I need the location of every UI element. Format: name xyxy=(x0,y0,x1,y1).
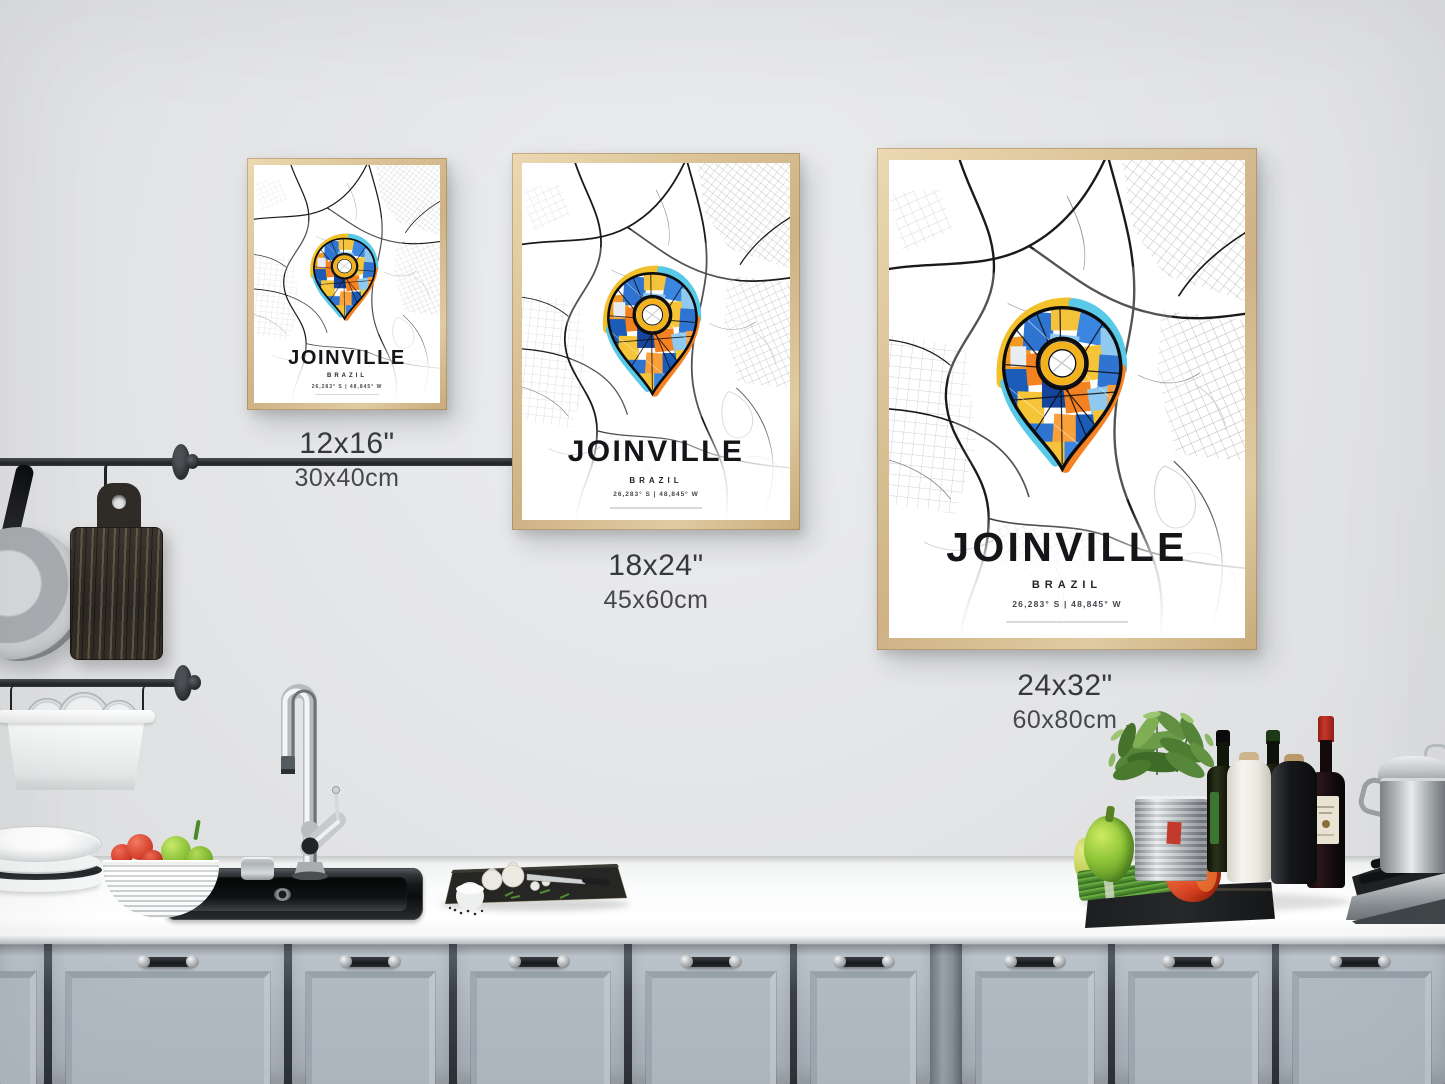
poster-frame-24x32: JOINVILLE BRAZIL 26,283° S | 48,845° W xyxy=(877,148,1257,650)
cabinet-handle xyxy=(1166,957,1220,967)
poster-country: BRAZIL xyxy=(254,373,440,379)
poster-coordinates: 26,283° S | 48,845° W xyxy=(889,599,1245,609)
cabinet-door xyxy=(457,944,624,1084)
cabinet-door xyxy=(52,944,284,1084)
kitchen-mockup-scene: JOINVILLE BRAZIL 26,283° S | 48,845° W J… xyxy=(0,0,1445,1084)
cabinet-handle xyxy=(1333,957,1387,967)
wall-rail-lower xyxy=(0,679,198,687)
grinder-body xyxy=(1227,760,1271,882)
poster-title: JOINVILLE xyxy=(522,437,790,467)
size-cm: 30x40cm xyxy=(247,464,447,493)
rail-bracket xyxy=(174,665,192,701)
rail-bracket xyxy=(172,444,190,480)
green-bell-pepper xyxy=(1084,816,1134,882)
poster-print: JOINVILLE BRAZIL 26,283° S | 48,845° W xyxy=(522,163,790,520)
utensil-bucket-rim xyxy=(0,710,155,723)
size-inches: 24x32" xyxy=(965,669,1165,703)
cabinet-handle xyxy=(1008,957,1062,967)
cabinet-door xyxy=(1279,944,1445,1084)
poster-print: JOINVILLE BRAZIL 26,283° S | 48,845° W xyxy=(889,160,1245,638)
counter-front-edge xyxy=(0,934,1445,944)
white-ribbed-bowl xyxy=(103,860,219,918)
poster-title: JOINVILLE xyxy=(889,527,1245,568)
cabinet-door xyxy=(632,944,790,1084)
poster-frame-12x16: JOINVILLE BRAZIL 26,283° S | 48,845° W xyxy=(247,158,447,410)
cabinet-door xyxy=(797,944,930,1084)
utensil-bucket xyxy=(0,712,152,790)
cabinet-door xyxy=(1115,944,1272,1084)
cabinet-handle xyxy=(684,957,738,967)
poster-coordinates: 26,283° S | 48,845° W xyxy=(254,384,440,390)
cabinet-door xyxy=(0,944,44,1084)
pepper-grinder xyxy=(1271,754,1317,884)
poster-frame-18x24: JOINVILLE BRAZIL 26,283° S | 48,845° W xyxy=(512,153,800,530)
cabinet-filler-panel xyxy=(930,944,962,1084)
poster-title: JOINVILLE xyxy=(254,348,440,368)
cabinet-handle xyxy=(141,957,195,967)
poster-coordinates: 26,283° S | 48,845° W xyxy=(522,491,790,498)
cabinet-handle xyxy=(343,957,397,967)
poster-fine-print xyxy=(1006,621,1127,623)
hanging-cutting-board xyxy=(70,483,163,660)
poster-country: BRAZIL xyxy=(889,579,1245,591)
size-inches: 12x16" xyxy=(247,427,447,461)
stock-pot xyxy=(1380,778,1445,873)
cabinet-row xyxy=(0,944,1445,1084)
poster-fine-print xyxy=(610,507,701,509)
poster-print: JOINVILLE BRAZIL 26,283° S | 48,845° W xyxy=(254,165,440,403)
cabinet-door xyxy=(962,944,1108,1084)
size-cm: 45x60cm xyxy=(556,586,756,615)
cabinet-handle xyxy=(837,957,891,967)
faucet xyxy=(250,680,390,880)
tin-can-planter xyxy=(1135,796,1207,881)
prep-board-group xyxy=(435,858,640,920)
fruit-bowl-group xyxy=(103,820,225,916)
poster-country: BRAZIL xyxy=(522,476,790,485)
size-inches: 18x24" xyxy=(556,549,756,583)
sink-drain xyxy=(274,888,291,901)
cabinet-door xyxy=(292,944,449,1084)
cabinet-handle xyxy=(512,957,566,967)
size-label-18x24: 18x24" 45x60cm xyxy=(556,549,756,615)
grinder-body xyxy=(1271,761,1317,884)
plate-stack xyxy=(0,824,106,894)
size-label-12x16: 12x16" 30x40cm xyxy=(247,427,447,493)
salt-grinder xyxy=(1227,752,1271,882)
poster-fine-print xyxy=(315,394,378,395)
cutting-board-body xyxy=(70,527,163,660)
herb-plant xyxy=(1097,700,1232,808)
pepper-stem xyxy=(193,820,200,840)
